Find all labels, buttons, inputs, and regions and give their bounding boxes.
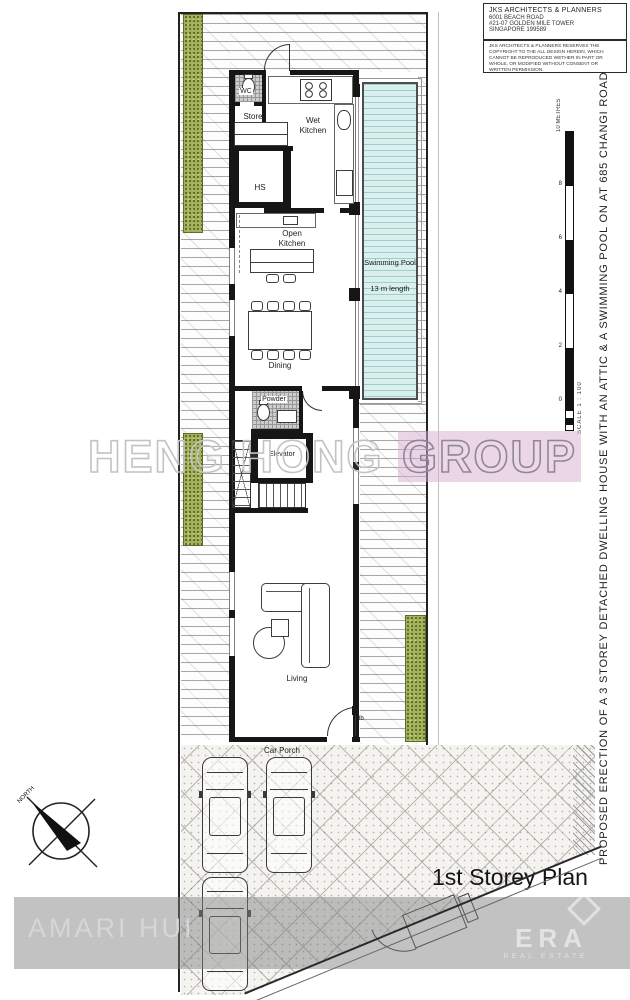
north-label: NORTH xyxy=(17,786,36,805)
db-box xyxy=(352,706,359,715)
scale-unit-label: 10 METRES xyxy=(556,84,562,132)
sofa xyxy=(301,583,330,668)
room-label-living: Living xyxy=(279,674,315,684)
dining-chair xyxy=(251,301,263,311)
wall-segment xyxy=(232,508,308,513)
room-label-wc: WC xyxy=(234,88,258,96)
dining-chair xyxy=(267,301,279,311)
scale-tick: 2 xyxy=(552,343,562,350)
island-line xyxy=(251,262,313,263)
wall-segment xyxy=(229,70,235,386)
watermark-heng-hong-group: HENG HONG GROUP xyxy=(88,431,581,483)
window xyxy=(229,572,235,610)
room-label-hs: HS xyxy=(244,183,276,193)
watermark-band: AMARI HUI ERA REAL ESTATE xyxy=(14,897,630,969)
kitchen-counter xyxy=(236,213,316,228)
wall-segment xyxy=(340,208,359,213)
stool xyxy=(283,274,296,283)
project-title: PROPOSED ERECTION OF A 3 STOREY DETACHED… xyxy=(598,117,610,865)
floor-plan-sheet: Swimming Pool 13 m length WC Store HS xyxy=(0,0,630,1000)
watermark-amari-hui: AMARI HUI xyxy=(28,913,195,944)
scale-ratio-label: SCALE 1 : 100 xyxy=(577,338,583,434)
door-opening xyxy=(264,70,290,75)
hs-blast-wall xyxy=(283,151,291,206)
room-label-text: WC xyxy=(239,88,253,95)
watermark-group: GROUP xyxy=(398,431,581,482)
dining-chair xyxy=(267,350,279,360)
scale-bar-segment xyxy=(566,418,573,425)
scale-bar-segment xyxy=(566,240,573,294)
basin xyxy=(277,410,297,423)
title-block-copyright: JKS ARCHITECTS & PLANNERS RESERVES THE C… xyxy=(483,40,627,73)
pool-length-label: 13 m length xyxy=(362,284,418,293)
fridge xyxy=(336,170,353,196)
toilet xyxy=(257,404,270,421)
gas-hob xyxy=(300,79,332,101)
dining-chair xyxy=(299,350,311,360)
dining-chair xyxy=(283,301,295,311)
scale-bar-subdivision xyxy=(565,403,574,431)
north-compass-icon: NORTH xyxy=(15,783,103,875)
wall-segment xyxy=(299,391,303,433)
car-top-view xyxy=(202,757,248,873)
kitchen-island xyxy=(250,249,314,273)
stool xyxy=(266,274,279,283)
side-table xyxy=(271,619,289,637)
window xyxy=(229,300,235,336)
door-leaf xyxy=(289,44,290,71)
dining-chair xyxy=(299,301,311,311)
scale-tick: 0 xyxy=(552,397,562,404)
window xyxy=(229,618,235,656)
era-logo-icon xyxy=(567,892,601,926)
column xyxy=(349,288,360,301)
room-label-store: Store xyxy=(238,112,268,122)
dining-chair xyxy=(251,350,263,360)
site-boundary-left xyxy=(178,12,180,992)
title-block-address: JKS ARCHITECTS & PLANNERS 6001 BEACH ROA… xyxy=(483,3,627,40)
sofa-cushion-line xyxy=(309,588,310,663)
scale-tick: 4 xyxy=(552,289,562,296)
hs-blast-wall xyxy=(231,151,239,206)
scale-bar xyxy=(565,131,574,403)
scale-tick: 8 xyxy=(552,181,562,188)
room-label-open-kitchen: Open Kitchen xyxy=(270,229,314,248)
scale-bar-segment xyxy=(566,132,573,186)
room-label-powder: Powder xyxy=(254,396,294,404)
car-top-view xyxy=(266,757,312,873)
staircase-treads xyxy=(258,483,306,508)
swimming-pool xyxy=(362,82,418,400)
planting-strip-left-upper xyxy=(183,14,203,233)
firm-address-line3: SINGAPORE 199589 xyxy=(489,27,621,33)
watermark-heng-hong: HENG HONG xyxy=(88,431,384,482)
plan-title: 1st Storey Plan xyxy=(432,864,588,891)
site-boundary-right xyxy=(426,12,428,745)
room-label-car-porch: Car Porch xyxy=(252,746,312,756)
firm-name: JKS ARCHITECTS & PLANNERS xyxy=(489,7,621,14)
copyright-note: JKS ARCHITECTS & PLANNERS RESERVES THE C… xyxy=(489,44,621,74)
toilet-cistern xyxy=(244,74,253,79)
dining-table xyxy=(248,311,312,350)
room-label-text: Powder xyxy=(261,396,287,403)
scale-bar-segment xyxy=(566,404,573,411)
shelf-line xyxy=(235,134,287,135)
door-swing-arc xyxy=(302,391,322,411)
sliding-glass-line xyxy=(355,97,356,397)
planting-strip-right xyxy=(405,615,426,742)
watermark-era-subtitle: REAL ESTATE xyxy=(503,953,588,960)
sliding-track xyxy=(239,215,241,273)
room-label-swimming-pool: Swimming Pool xyxy=(362,258,418,267)
wall-segment xyxy=(229,737,327,742)
scale-bar-segment xyxy=(566,348,573,402)
door-opening xyxy=(240,102,254,106)
room-label-dining: Dining xyxy=(262,361,298,371)
site-boundary-top xyxy=(178,12,428,14)
roadside-drain-hatch xyxy=(573,745,595,855)
room-label-wet-kitchen: Wet Kitchen xyxy=(294,116,332,135)
kitchen-sink xyxy=(337,110,351,130)
dining-chair xyxy=(283,350,295,360)
wall-segment xyxy=(322,386,359,391)
kitchen-sink xyxy=(283,216,298,225)
scale-tick: 6 xyxy=(552,235,562,242)
drain-line-right xyxy=(438,12,439,745)
db-label: db xyxy=(357,716,371,723)
store-shelf xyxy=(234,122,288,146)
watermark-era: ERA xyxy=(515,923,588,954)
window xyxy=(229,248,235,284)
